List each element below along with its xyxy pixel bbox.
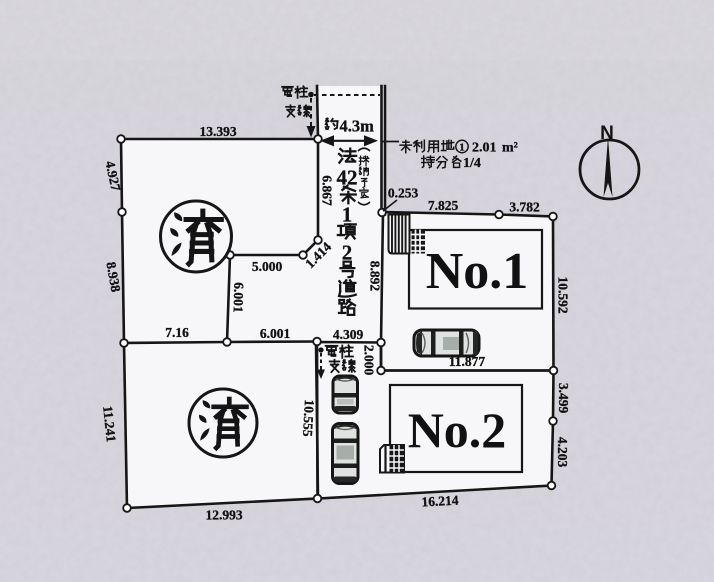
svg-text:1: 1 — [459, 142, 465, 154]
svg-text:4.3m: 4.3m — [340, 117, 375, 136]
svg-text:12.993: 12.993 — [205, 508, 242, 523]
svg-text:m²: m² — [502, 141, 518, 156]
svg-text:No.2: No.2 — [408, 402, 507, 458]
svg-text:7.16: 7.16 — [165, 325, 189, 340]
svg-text:3.782: 3.782 — [509, 200, 540, 215]
svg-text:8.892: 8.892 — [367, 261, 382, 292]
svg-text:N: N — [600, 123, 614, 144]
svg-text:10.592: 10.592 — [556, 276, 571, 313]
svg-text:10.555: 10.555 — [300, 399, 317, 437]
svg-text:1: 1 — [342, 203, 353, 227]
svg-text:No.1: No.1 — [426, 243, 529, 300]
svg-text:7.825: 7.825 — [428, 198, 459, 213]
svg-text:3.499: 3.499 — [556, 383, 571, 414]
svg-text:2.000: 2.000 — [362, 345, 377, 376]
svg-text:6.001: 6.001 — [260, 326, 291, 341]
svg-text:0.253: 0.253 — [388, 186, 419, 201]
svg-text:5.000: 5.000 — [252, 259, 283, 274]
svg-text:1/4: 1/4 — [463, 156, 481, 171]
svg-text:13.393: 13.393 — [199, 124, 236, 139]
svg-text:6.001: 6.001 — [230, 282, 246, 313]
svg-text:4.203: 4.203 — [555, 437, 570, 468]
svg-text:4.309: 4.309 — [333, 327, 364, 342]
svg-text:16.214: 16.214 — [421, 493, 459, 510]
svg-text:6.867: 6.867 — [320, 175, 335, 206]
svg-text:2.01: 2.01 — [472, 141, 497, 156]
